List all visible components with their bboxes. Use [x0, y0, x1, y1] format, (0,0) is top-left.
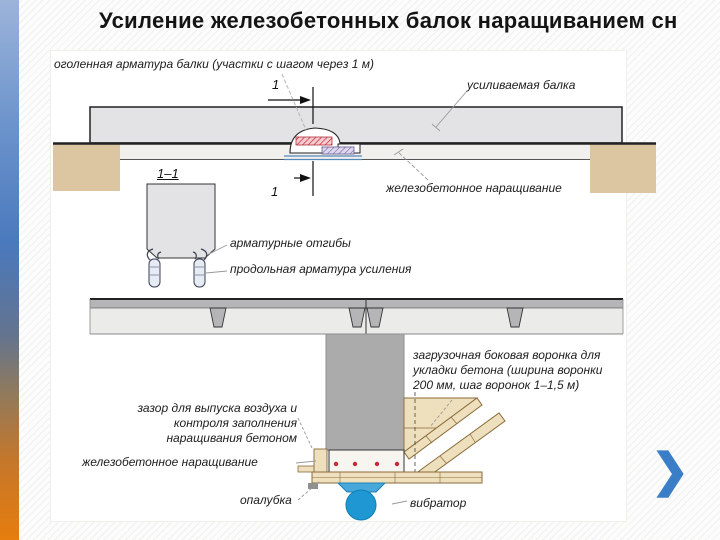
label-buildup-bottom: железобетонное наращивание — [82, 455, 258, 470]
label-formwork: опалубка — [240, 493, 292, 508]
section-1-1-drawing — [147, 184, 227, 287]
label-longitudinal: продольная арматура усиления — [230, 262, 411, 277]
beam-outline — [90, 107, 622, 143]
formwork-clamp — [308, 483, 318, 489]
section-1-1-title: 1–1 — [157, 166, 179, 181]
leader-air-gap — [298, 418, 312, 448]
support-right — [590, 144, 656, 193]
slab-top-band — [90, 299, 623, 308]
label-exposed-rebar: оголенная арматура балки (участки с шаго… — [54, 57, 374, 72]
beam-cross-section — [147, 184, 215, 258]
leader-longitudinal — [206, 271, 227, 273]
beam-column — [326, 334, 404, 450]
leader-vibrator — [392, 501, 407, 504]
label-strengthened-beam: усиливаемая балка — [467, 78, 575, 93]
label-buildup-top: железобетонное наращивание — [386, 181, 562, 196]
presentation-slide: Усиление железобетонных балок наращивани… — [0, 0, 720, 540]
next-slide-chevron-icon[interactable]: ❯ — [648, 444, 692, 496]
section-line-bottom — [294, 161, 313, 196]
leader-buildup-bottom — [296, 461, 316, 463]
rc-buildup-box — [329, 450, 404, 472]
label-loading-funnel: загрузочная боковая воронка для укладки … — [413, 348, 625, 393]
section-mark-1-top: 1 — [272, 77, 279, 92]
section-mark-1-bottom: 1 — [271, 184, 278, 199]
support-left — [53, 144, 120, 191]
label-vibrator: вибратор — [410, 496, 466, 511]
label-rebar-bends: арматурные отгибы — [230, 236, 351, 251]
longitudinal-bars — [149, 259, 205, 287]
vibrator — [338, 483, 385, 520]
loading-funnel — [404, 392, 505, 482]
label-air-gap: зазор для выпуска воздуха и контроля зап… — [120, 401, 297, 446]
